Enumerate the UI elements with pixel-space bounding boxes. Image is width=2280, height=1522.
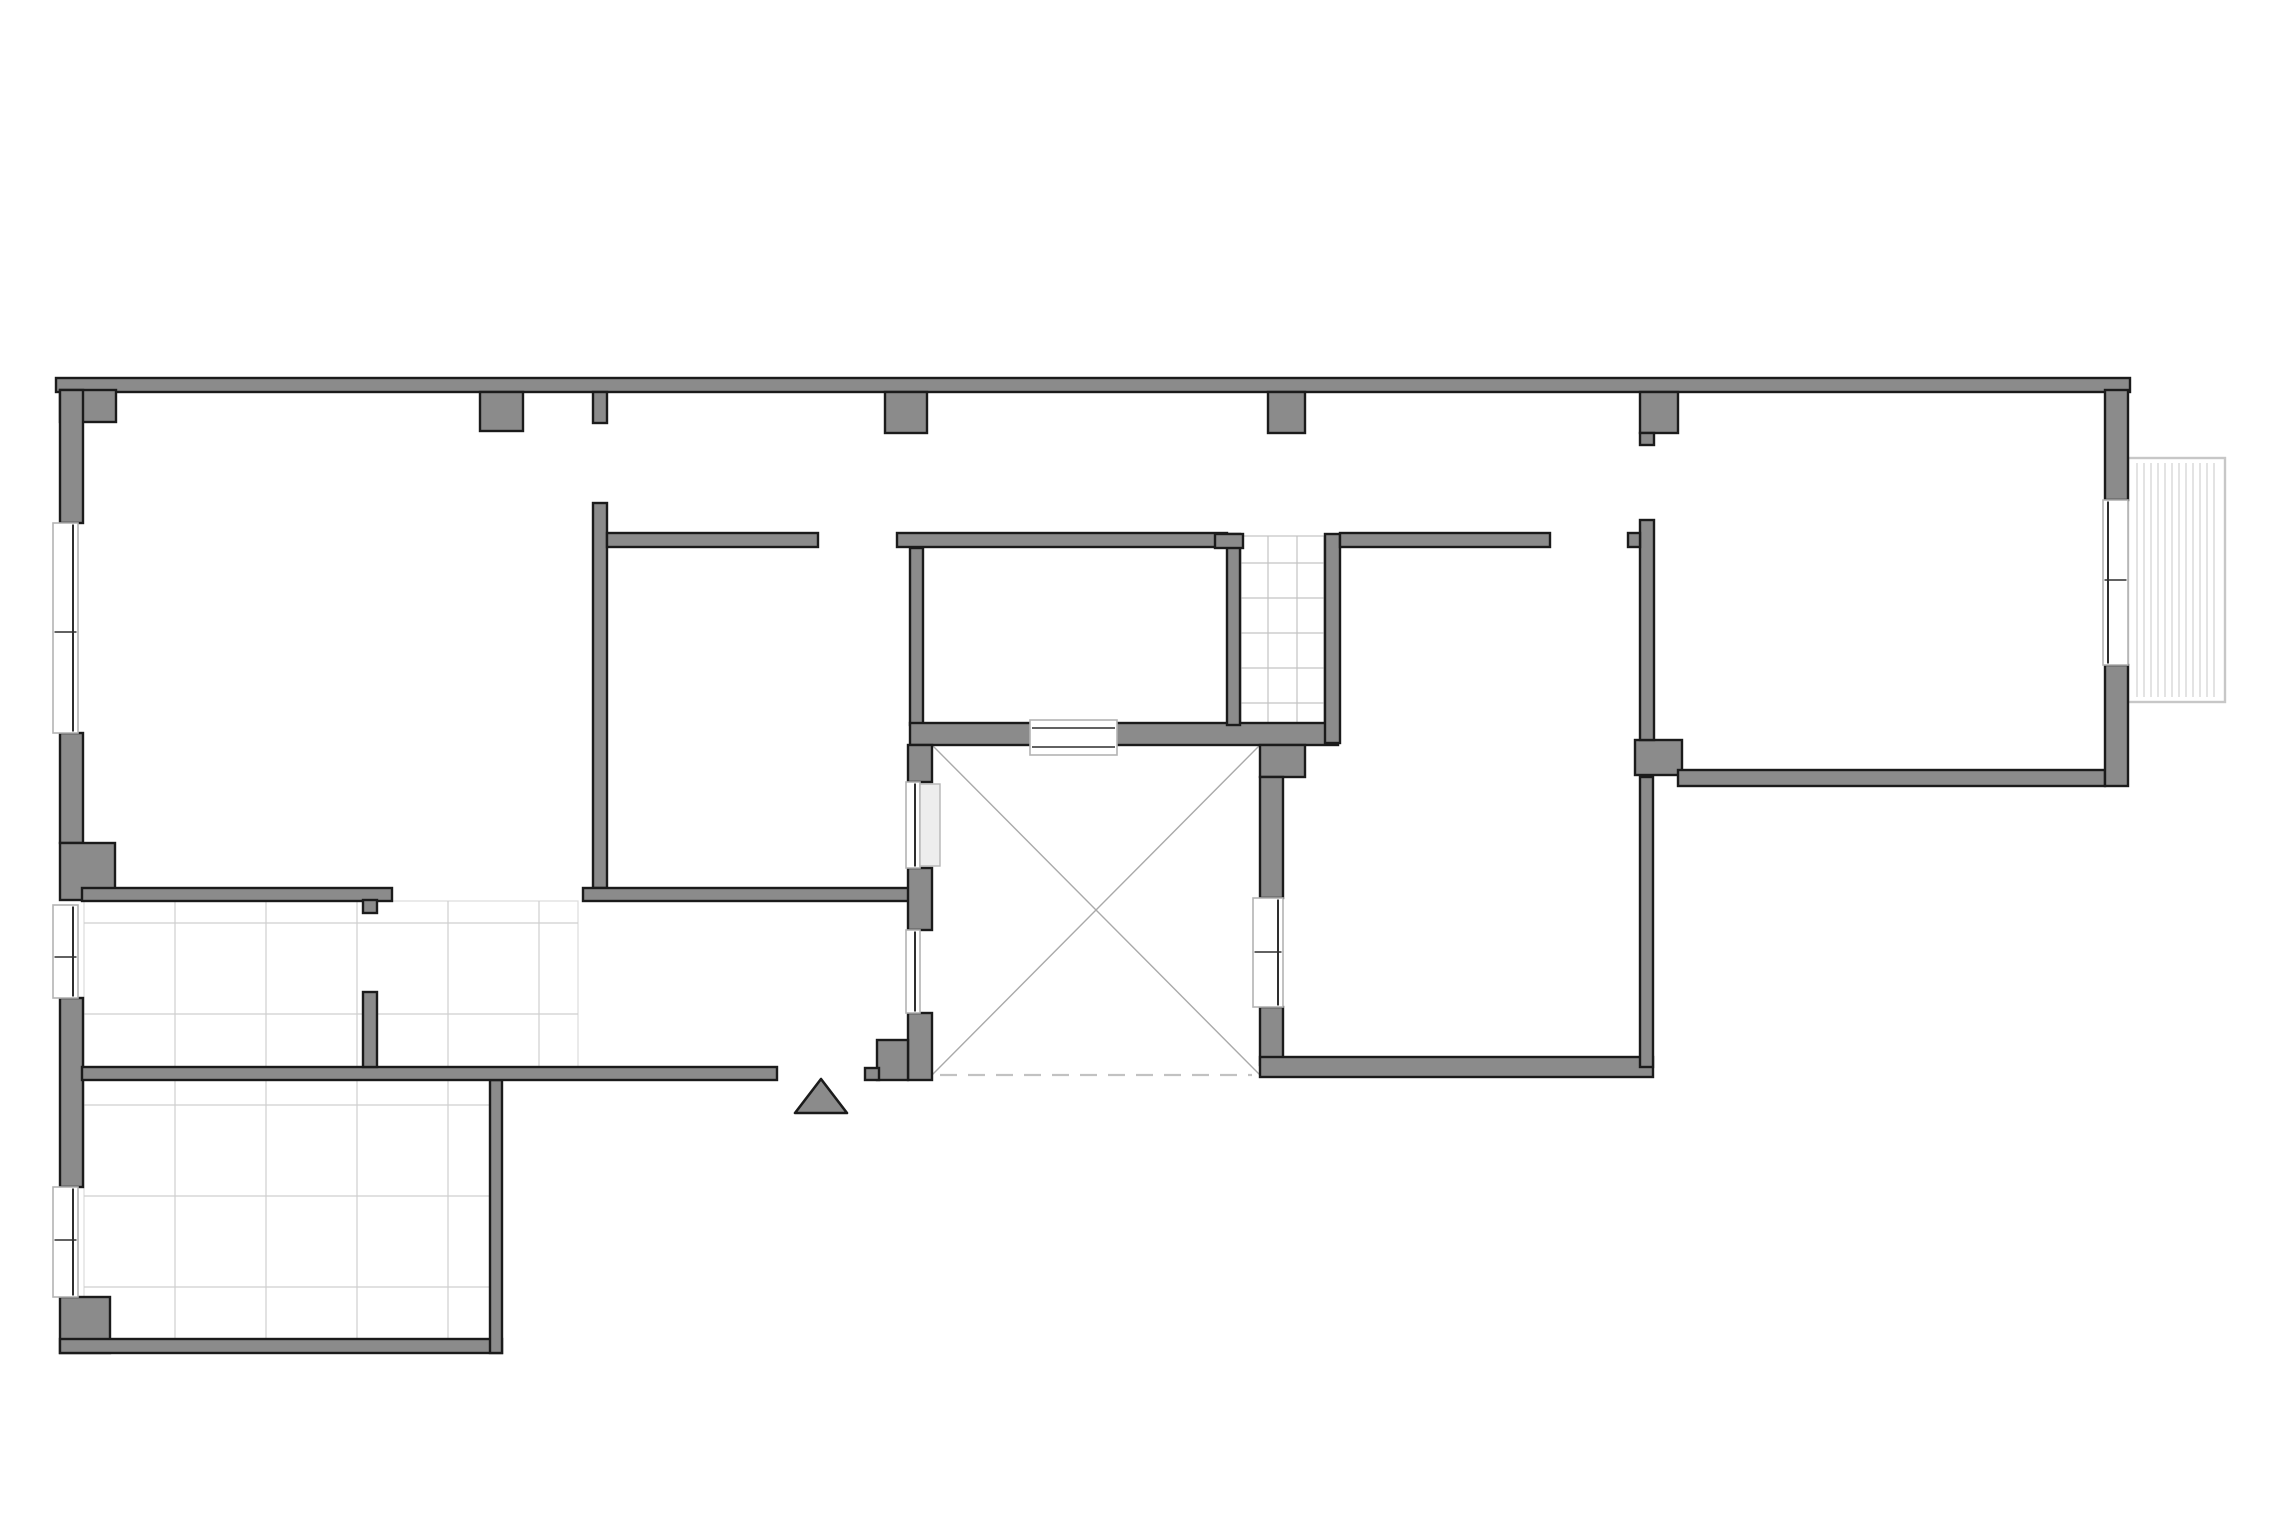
- kitchen-door-jamb: [363, 992, 377, 1067]
- left-wall-lower: [60, 998, 83, 1187]
- right-wall-lower: [2105, 665, 2128, 786]
- pilaster-3: [1268, 392, 1305, 433]
- stair-shaft-treads: [1241, 536, 1324, 724]
- window-left-lower: [53, 1187, 78, 1297]
- bottom-wall-left: [60, 1339, 502, 1353]
- pilaster-4: [1640, 392, 1678, 433]
- bedroom-south-wall: [1260, 1057, 1653, 1077]
- partition-h3: [1340, 533, 1550, 547]
- floor-plan-page: [0, 0, 2280, 1522]
- partition-w2: [910, 548, 923, 725]
- top-exterior-wall: [56, 378, 2130, 392]
- entry-column-block-lower: [908, 868, 932, 930]
- door-hall-courtyard: [906, 782, 920, 868]
- left-wall-mid: [60, 733, 83, 843]
- stair-shaft-east-wall: [1325, 534, 1340, 743]
- pilaster-1: [480, 392, 523, 431]
- stair-shaft-west-wall: [1227, 534, 1240, 725]
- hall-south-wall: [583, 888, 910, 901]
- right-room-west-wall: [1640, 520, 1654, 740]
- floor-plan-svg: [0, 0, 2280, 1522]
- right-room-south-wall: [1678, 770, 2105, 786]
- south-wall-mid: [82, 1067, 777, 1080]
- right-junction-block: [1635, 740, 1682, 775]
- entry-jamb-tall: [908, 1013, 932, 1080]
- courtyard-east-block: [1260, 745, 1305, 777]
- courtyard-north-wall: [910, 723, 1338, 745]
- entry-column-block-upper: [908, 745, 932, 782]
- tiled-floor-lower: [84, 1080, 490, 1342]
- pilaster-4-stub: [1640, 433, 1654, 445]
- pilaster-2: [885, 392, 927, 433]
- partition-h1: [607, 533, 818, 547]
- left-wall-upper: [60, 390, 83, 523]
- window-right-balcony: [2103, 500, 2128, 665]
- tiled-floor-upper: [84, 901, 578, 1067]
- kitchen-north-wall: [82, 888, 392, 901]
- entry-sidelight: [906, 930, 920, 1013]
- hall-west-wall: [593, 503, 607, 888]
- right-wall-upper: [2105, 390, 2128, 500]
- window-left-mid: [53, 905, 78, 998]
- stair-shaft-west-tab: [1215, 534, 1243, 548]
- partition-h2: [897, 533, 1227, 547]
- hall-west-wall-top-stub: [593, 392, 607, 423]
- window-left-upper: [53, 523, 78, 733]
- entry-jamb-mid: [877, 1040, 908, 1080]
- door-leaf-hall-courtyard: [920, 784, 940, 866]
- courtyard-east-wall-upper: [1260, 777, 1283, 898]
- balcony: [2128, 458, 2225, 702]
- kitchen-east-wall: [490, 1080, 502, 1353]
- bedroom-east-wall: [1640, 777, 1653, 1067]
- right-room-west-tab: [1628, 533, 1640, 547]
- window-courtyard-north: [1030, 720, 1117, 755]
- entry-jamb-low: [865, 1068, 879, 1080]
- kitchen-door-tab: [363, 900, 377, 913]
